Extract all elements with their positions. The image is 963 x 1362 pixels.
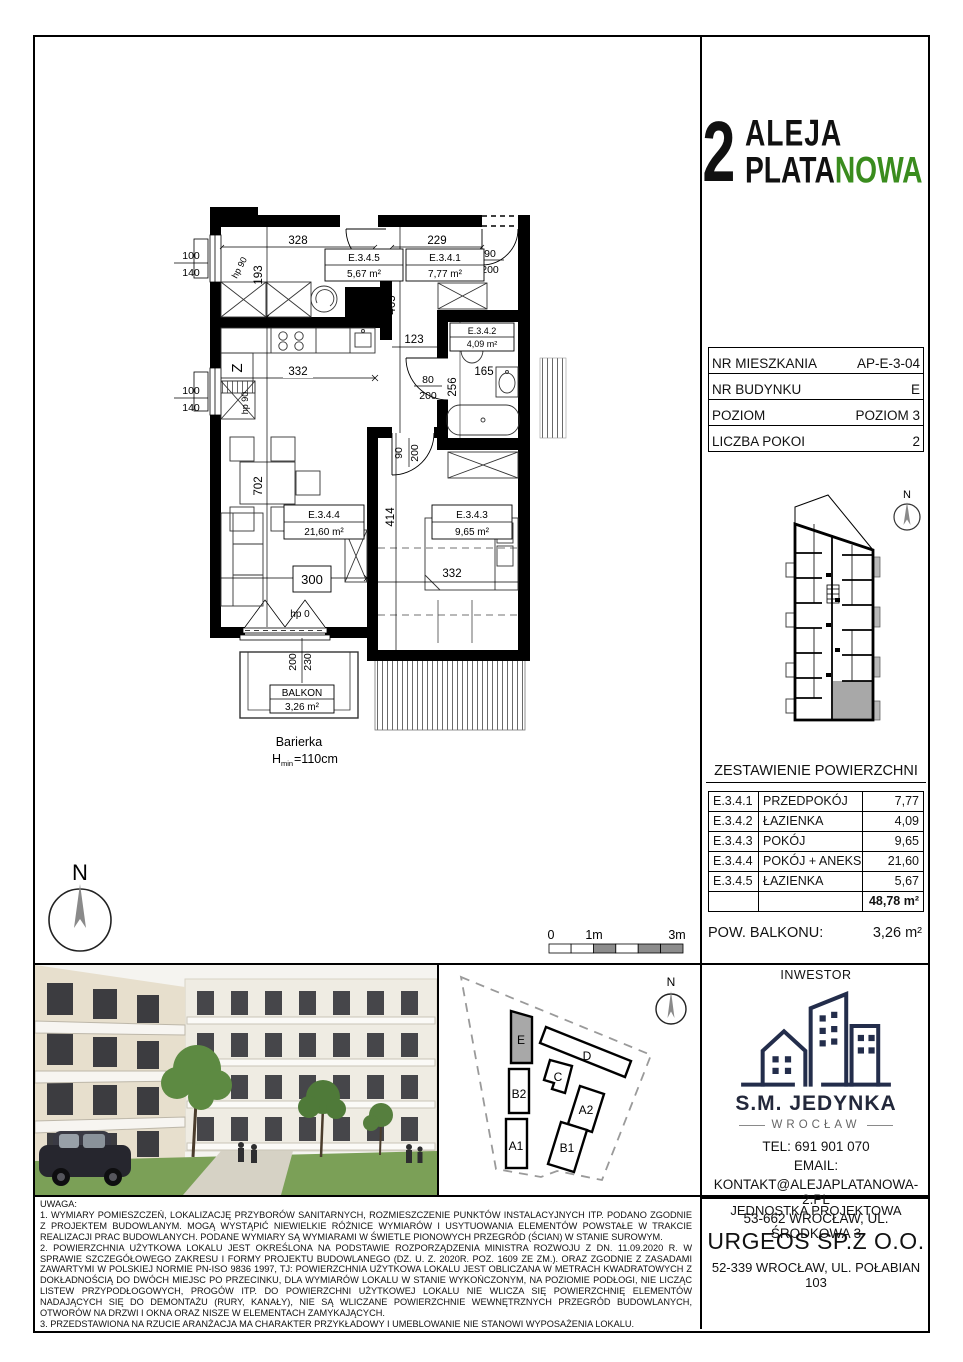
room-area: 9,65 m² [455,527,490,538]
dim-100: 100 [182,385,200,397]
balcony-label: BALKON 3,26 m² [270,685,334,713]
area-name: POKÓJ [759,832,863,852]
designer-address: 52-339 WROCŁAW, UL. POŁABIAN 103 [703,1260,929,1290]
investor-name: S.M. JEDYNKA [703,1092,929,1116]
dim-123: 123 [404,334,423,346]
logo-word-aleja: ALEJA [745,116,923,153]
railing-annotation: Barierka H min =110cm [272,735,338,768]
area-code [709,892,759,911]
investor-email-label: EMAIL: [703,1158,929,1173]
sill-height-label: hp 90 [240,392,250,415]
area-name: POKÓJ + ANEKS [759,852,863,872]
kitchen-z-symbol: Z [229,363,246,372]
investor-city-text: WROCŁAW [772,1119,861,1131]
dim-300: 300 [301,572,323,587]
disclaimer-heading: UWAGA: [40,1199,692,1210]
railing-eq: =110cm [294,752,338,766]
compass-n-label: N [72,860,88,885]
dim-414: 414 [385,507,397,527]
dim-90: 90 [393,447,405,459]
table-row: NR BUDYNKUE [709,374,923,400]
areas-title-text: ZESTAWIENIE POWIERZCHNI [706,763,926,783]
dim-140: 140 [182,267,200,279]
area-value: 21,60 [863,852,923,872]
table-row: POZIOMPOZIOM 3 [709,400,923,426]
compass-n-label: N [903,489,911,501]
floor-plan-drawing: 328 229 193 465 123 332 332 702 414 256 … [150,195,585,775]
area-value: 4,09 [863,812,923,832]
dim-300-box: 300 [293,566,331,592]
row-value: 2 [912,434,920,449]
room-code: E.3.4.4 [308,510,340,521]
room-area: 7,77 m² [428,269,463,280]
balcony-area: 3,26 m² [285,702,320,713]
room-label-e341: E.3.4.1 7,77 m² [406,249,484,281]
balcony-value: 3,26 m² [873,925,922,941]
area-code: E.3.4.5 [709,872,759,892]
dash-right [867,1125,893,1126]
designer-name: URGEOS SP.Z O.O. [703,1228,929,1255]
dim-80: 80 [422,374,434,386]
dim-465: 465 [386,295,398,314]
room-area: 21,60 m² [304,527,344,538]
sill-height-label: hp 0 [290,609,310,620]
dim-90: 90 [484,248,496,260]
building-e: E [511,1011,532,1063]
scale-0: 0 [548,928,555,942]
room-label-e344: E.3.4.4 21,60 m² [284,505,364,539]
railing-label: Barierka [276,735,323,749]
row-value: E [911,382,920,397]
railing-h: H [272,752,281,766]
sill-height-label: hp 90 [230,255,249,280]
building-label: A2 [579,1103,594,1117]
row-label: LICZBA POKOI [712,434,805,449]
area-code: E.3.4.1 [709,792,759,812]
entrance-opening [482,216,518,226]
balcony-name: BALKON [282,688,323,699]
room-code: E.3.4.2 [468,326,497,336]
area-value: 7,77 [863,792,923,812]
highlighted-unit [833,681,873,720]
sidebar-divider [700,35,702,1329]
dim-200: 200 [419,390,437,402]
logo-number: 2 [703,115,734,192]
investor-buildings-icon [736,986,896,1090]
keyplan-compass: N [894,489,920,530]
area-code: E.3.4.2 [709,812,759,832]
floor-plan-sheet: 2 ALEJA PLATANOWA NR MIESZKANIAAP-E-3-04… [0,0,963,1362]
scale-1m: 1m [585,928,602,942]
dim-193: 193 [253,265,265,284]
areas-table: E.3.4.1PRZEDPOKÓJ7,77 E.3.4.2ŁAZIENKA4,0… [708,791,924,912]
logo-word-nowa: NOWA [835,151,923,191]
row-value: POZIOM 3 [855,408,920,423]
neighbour-terrace-hatch [375,358,566,730]
area-code: E.3.4.4 [709,852,759,872]
room-label-e345: E.3.4.5 5,67 m² [325,249,403,281]
scale-3m: 3m [668,928,685,942]
balcony-area-row: POW. BALKONU: 3,26 m² [708,925,922,941]
designer-block: JEDNOSTKA PROJEKTOWA URGEOS SP.Z O.O. 52… [703,1203,929,1290]
area-total: 48,78 m² [863,892,923,911]
room-label-e342: E.3.4.2 4,09 m² [450,323,514,351]
dim-702: 702 [253,476,265,495]
scale-bar: 0 1m 3m [543,926,691,960]
dash-left [739,1125,765,1126]
dim-200: 200 [409,444,421,462]
logo-word-plata: PLATA [745,151,835,191]
disclaimer-item: 2. POWIERZCHNIA UŻYTKOWA LOKALU JEST OKR… [40,1243,692,1319]
room-code: E.3.4.5 [348,253,380,264]
area-name: PRZEDPOKÓJ [759,792,863,812]
area-name [759,892,863,911]
row-label: POZIOM [712,408,765,423]
compass-needle [74,884,86,928]
logo-wordmark: ALEJA PLATANOWA [745,116,923,189]
building-a1: A1 [506,1119,527,1168]
building-render-photo [35,965,437,1195]
building-key-plan: N [770,485,930,743]
main-compass: N [38,858,123,956]
investor-block: INWESTOR S.M. JEDYNKA WROCŁAW TEL: 691 9… [703,968,929,1241]
table-row: LICZBA POKOI2 [709,426,923,451]
area-code: E.3.4.3 [709,832,759,852]
designer-title: JEDNOSTKA PROJEKTOWA [703,1203,929,1218]
area-value: 5,67 [863,872,923,892]
area-value: 9,65 [863,832,923,852]
investor-title: INWESTOR [703,968,929,982]
dim-332: 332 [442,568,461,580]
compass-n-label: N [667,975,676,989]
unit-info-table: NR MIESZKANIAAP-E-3-04 NR BUDYNKUE POZIO… [708,347,924,452]
dim-200: 200 [287,653,299,671]
building-label: C [554,1070,563,1084]
railing-sub: min [281,759,293,768]
room-area: 5,67 m² [347,269,382,280]
building-b2: B2 [509,1069,529,1113]
logo-word-platanowa: PLATANOWA [745,153,923,190]
disclaimer-item: 3. PRZEDSTAWIONA NA RZUCIE ARANŻACJA MA … [40,1319,692,1330]
dim-328: 328 [288,235,307,247]
building-label: A1 [509,1139,524,1153]
dim-230: 230 [302,653,314,671]
building-label: B1 [560,1141,575,1155]
room-code: E.3.4.3 [456,510,488,521]
building-label: E [517,1033,525,1047]
room-label-e343: E.3.4.3 9,65 m² [432,505,512,539]
row-label: NR BUDYNKU [712,382,801,397]
dim-332: 332 [288,366,307,378]
disclaimer: UWAGA: 1. WYMIARY POMIESZCZEŃ, LOKALIZAC… [40,1199,692,1330]
keyplan-building [786,495,880,720]
dim-100: 100 [182,250,200,262]
investor-phone: TEL: 691 901 070 [703,1139,929,1154]
building-label: B2 [512,1087,527,1101]
disclaimer-item: 1. WYMIARY POMIESZCZEŃ, LOKALIZACJĘ PRZY… [40,1210,692,1243]
row-label: NR MIESZKANIA [712,356,817,371]
building-label: D [583,1049,592,1063]
balcony-label: POW. BALKONU: [708,925,823,941]
dim-229: 229 [427,235,446,247]
dim-165: 165 [474,366,493,378]
areas-title: ZESTAWIENIE POWIERZCHNI [703,763,929,787]
area-name: ŁAZIENKA [759,812,863,832]
table-row: NR MIESZKANIAAP-E-3-04 [709,348,923,374]
room-code: E.3.4.1 [429,253,461,264]
row-value: AP-E-3-04 [857,356,920,371]
brand-logo: 2 ALEJA PLATANOWA [703,88,929,218]
investor-city: WROCŁAW [703,1119,929,1131]
dim-140: 140 [182,402,200,414]
far-building [185,979,437,1151]
room-area: 4,09 m² [467,339,498,349]
dim-256: 256 [447,377,459,396]
site-plan: E D C B2 A2 A1 [439,965,700,1195]
area-name: ŁAZIENKA [759,872,863,892]
